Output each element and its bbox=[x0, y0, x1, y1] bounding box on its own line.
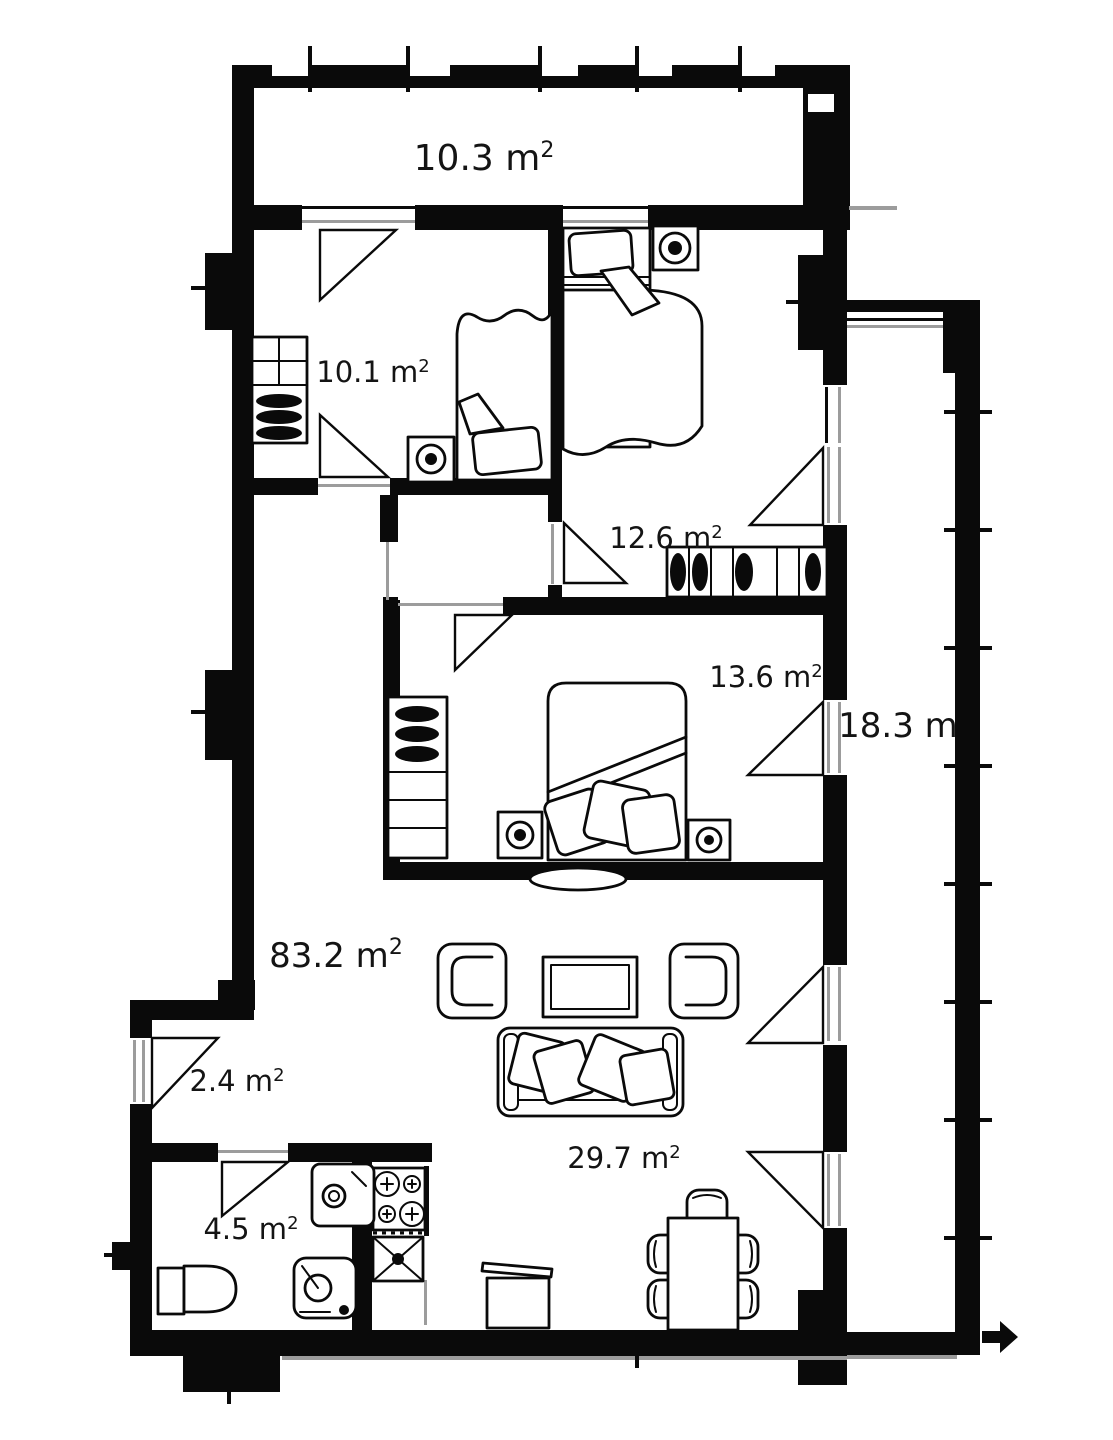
room-label-bedroom-large: 13.6 m2 bbox=[709, 660, 823, 694]
room-label-bedroom-small: 10.1 m2 bbox=[316, 355, 430, 389]
nightstand-lamp bbox=[688, 820, 730, 860]
dining-table bbox=[668, 1218, 738, 1330]
room-label-total-area: 83.2 m2 bbox=[269, 935, 403, 976]
kitchen-furniture bbox=[373, 1168, 552, 1328]
nightstand-lamp bbox=[498, 812, 542, 858]
door-swing-bedroom-small-entry bbox=[320, 415, 388, 477]
sofa bbox=[498, 1028, 683, 1116]
door-swing-bedroom-small-loggia bbox=[320, 230, 396, 300]
armchair bbox=[438, 944, 506, 1018]
bedroom-small-furniture bbox=[252, 310, 552, 482]
exit-arrow-icon bbox=[982, 1321, 1018, 1353]
dining-set bbox=[648, 1190, 758, 1330]
door-swing-bedroom-large-entry bbox=[455, 615, 512, 670]
room-label-bathroom: 4.5 m2 bbox=[203, 1212, 298, 1246]
armchair bbox=[670, 944, 738, 1018]
coffee-table bbox=[543, 957, 637, 1017]
pillow bbox=[472, 427, 542, 476]
door-swing-living-balcony-2 bbox=[748, 1152, 823, 1228]
room-label-living-room: 29.7 m2 bbox=[567, 1141, 681, 1175]
room-label-bedroom-mid: 12.6 m2 bbox=[609, 521, 723, 555]
room-label-balcony-right: 18.3 m bbox=[838, 706, 958, 746]
washing-machine bbox=[312, 1164, 374, 1226]
room-label-entry-hall: 2.4 m2 bbox=[189, 1064, 284, 1098]
bathroom-sink bbox=[294, 1258, 356, 1318]
stove bbox=[373, 1168, 425, 1233]
door-swing-bathroom bbox=[222, 1162, 288, 1216]
floor-plan-drawing: 10.3 m2 10.1 m2 12.6 m2 13.6 m2 18.3 m 8… bbox=[0, 0, 1113, 1440]
bedroom-large-furniture bbox=[388, 683, 730, 890]
nightstand-lamp bbox=[653, 226, 698, 270]
radiator bbox=[530, 868, 626, 890]
wardrobe bbox=[252, 337, 307, 443]
floor-plan-page: 10.3 m2 10.1 m2 12.6 m2 13.6 m2 18.3 m 8… bbox=[0, 0, 1113, 1440]
pillow bbox=[621, 794, 680, 855]
room-label-loggia-top: 10.3 m2 bbox=[414, 138, 555, 179]
kitchen-sink-cabinet bbox=[373, 1237, 423, 1281]
toilet bbox=[158, 1266, 236, 1314]
nightstand-lamp bbox=[408, 437, 454, 482]
wardrobe bbox=[388, 697, 447, 858]
door-swing-bedroom-mid-balcony bbox=[750, 448, 823, 525]
trash-bin bbox=[482, 1263, 552, 1328]
door-swing-bedroom-large-balcony bbox=[748, 702, 823, 775]
pillow bbox=[619, 1048, 675, 1106]
door-swing-living-balcony-1 bbox=[748, 967, 823, 1043]
